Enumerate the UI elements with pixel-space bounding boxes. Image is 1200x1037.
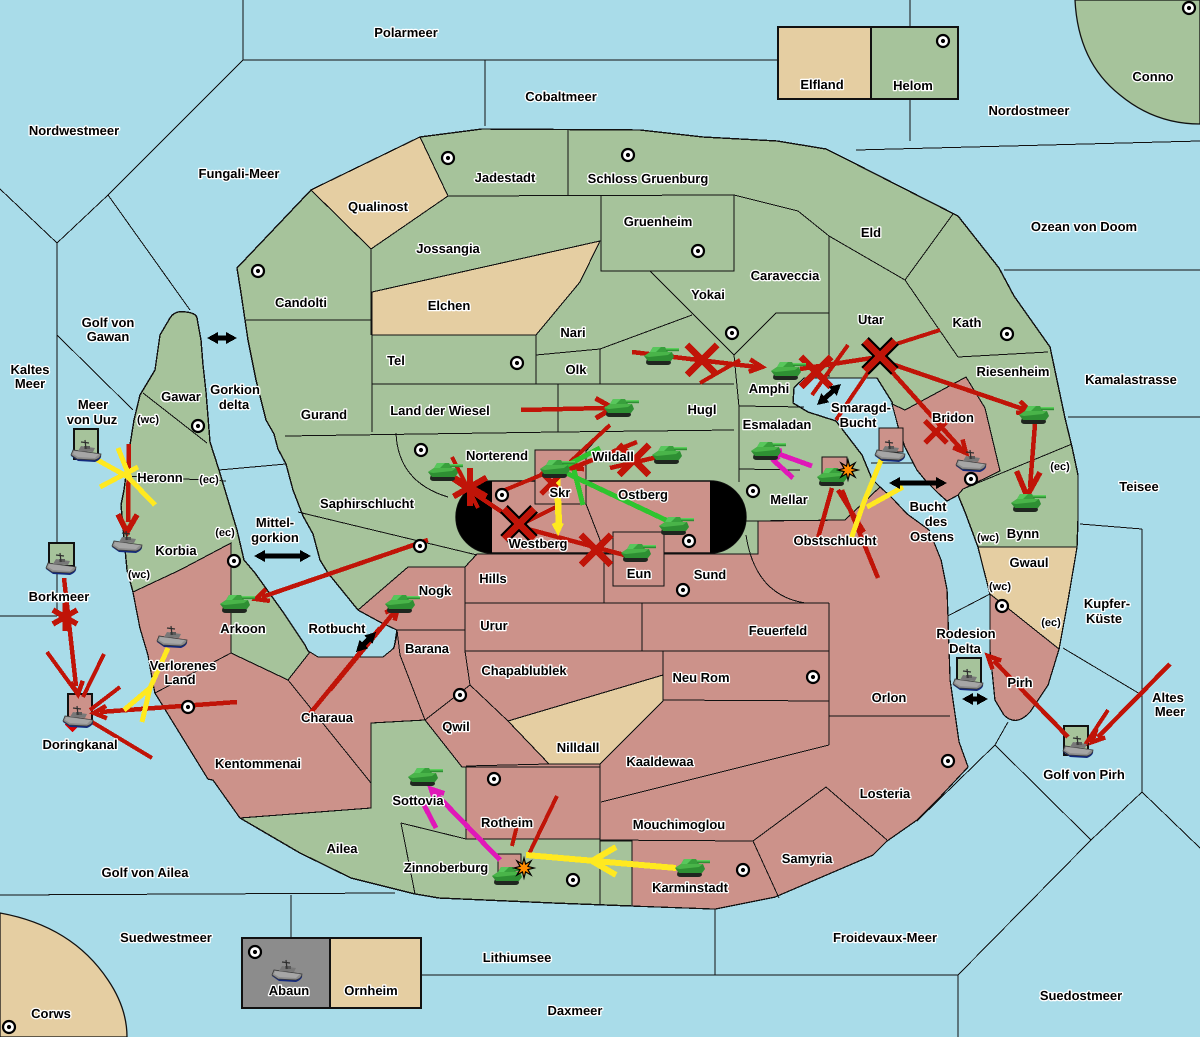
svg-text:Küste: Küste — [1086, 611, 1122, 626]
svg-text:Nilldall: Nilldall — [557, 740, 600, 755]
svg-text:Qualinost: Qualinost — [348, 199, 409, 214]
svg-text:Ailea: Ailea — [326, 841, 358, 856]
svg-text:Orlon: Orlon — [872, 690, 907, 705]
svg-text:Meer: Meer — [1155, 704, 1185, 719]
svg-text:Land: Land — [164, 672, 195, 687]
svg-text:Kupfer-: Kupfer- — [1084, 596, 1130, 611]
svg-text:Meer: Meer — [78, 397, 108, 412]
svg-text:Lithiumsee: Lithiumsee — [483, 950, 552, 965]
svg-text:Borkmeer: Borkmeer — [29, 589, 90, 604]
svg-text:Neu Rom: Neu Rom — [672, 670, 729, 685]
svg-text:Sund: Sund — [694, 567, 727, 582]
svg-text:Sottovia: Sottovia — [392, 793, 444, 808]
svg-text:Mouchimoglou: Mouchimoglou — [633, 817, 725, 832]
svg-text:Pirh: Pirh — [1007, 675, 1032, 690]
svg-text:Olk: Olk — [566, 362, 588, 377]
svg-text:Suedostmeer: Suedostmeer — [1040, 988, 1122, 1003]
svg-text:Zinnoberburg: Zinnoberburg — [404, 860, 489, 875]
svg-text:Gruenheim: Gruenheim — [624, 214, 693, 229]
svg-text:Eun: Eun — [627, 566, 652, 581]
svg-text:Suedwestmeer: Suedwestmeer — [120, 930, 212, 945]
svg-text:von Uuz: von Uuz — [67, 412, 118, 427]
svg-text:Golf von Ailea: Golf von Ailea — [102, 865, 190, 880]
svg-text:Bridon: Bridon — [932, 410, 974, 425]
svg-text:Froidevaux-Meer: Froidevaux-Meer — [833, 930, 937, 945]
svg-text:(ec): (ec) — [1041, 617, 1061, 629]
svg-text:Golf von: Golf von — [82, 315, 135, 330]
svg-text:Smaragd-: Smaragd- — [831, 400, 891, 415]
svg-text:Skr: Skr — [550, 485, 571, 500]
svg-text:Teisee: Teisee — [1119, 479, 1159, 494]
svg-text:Rotheim: Rotheim — [481, 815, 533, 830]
svg-text:Tel: Tel — [387, 353, 405, 368]
svg-text:Corws: Corws — [31, 1006, 71, 1021]
svg-text:Obstschlucht: Obstschlucht — [793, 533, 877, 548]
svg-text:Jadestadt: Jadestadt — [475, 170, 536, 185]
svg-text:Land der Wiesel: Land der Wiesel — [390, 403, 490, 418]
svg-text:(wc): (wc) — [137, 414, 159, 426]
svg-text:Abaun: Abaun — [269, 983, 310, 998]
svg-text:Samyria: Samyria — [782, 851, 833, 866]
svg-text:Gawar: Gawar — [161, 389, 201, 404]
svg-text:(ec): (ec) — [1050, 461, 1070, 473]
svg-text:Elfland: Elfland — [800, 77, 843, 92]
svg-text:Polarmeer: Polarmeer — [374, 25, 438, 40]
svg-text:Rodesion: Rodesion — [936, 626, 995, 641]
svg-text:Saphirschlucht: Saphirschlucht — [320, 496, 415, 511]
svg-text:Golf von Pirh: Golf von Pirh — [1043, 767, 1125, 782]
svg-text:Eld: Eld — [861, 225, 881, 240]
svg-text:Kaltes: Kaltes — [10, 362, 49, 377]
svg-text:Bucht: Bucht — [910, 499, 948, 514]
svg-text:Barana: Barana — [405, 641, 450, 656]
svg-text:(ec): (ec) — [199, 474, 219, 486]
svg-text:Kaaldewaa: Kaaldewaa — [626, 754, 694, 769]
svg-text:Helom: Helom — [893, 78, 933, 93]
svg-text:Mittel-: Mittel- — [256, 515, 294, 530]
svg-text:Yokai: Yokai — [691, 287, 725, 302]
svg-text:Daxmeer: Daxmeer — [548, 1003, 603, 1018]
svg-text:Losteria: Losteria — [860, 786, 911, 801]
svg-text:Ozean von Doom: Ozean von Doom — [1031, 219, 1137, 234]
svg-text:Qwil: Qwil — [442, 719, 469, 734]
svg-text:Gurand: Gurand — [301, 407, 347, 422]
svg-text:Elchen: Elchen — [428, 298, 471, 313]
svg-text:Wildall: Wildall — [592, 449, 634, 464]
svg-text:Bucht: Bucht — [840, 415, 878, 430]
svg-text:Fungali-Meer: Fungali-Meer — [199, 166, 280, 181]
svg-text:Ostens: Ostens — [910, 529, 954, 544]
svg-text:Chapablublek: Chapablublek — [481, 663, 567, 678]
svg-text:Arkoon: Arkoon — [220, 621, 266, 636]
svg-text:Gorkion: Gorkion — [210, 382, 260, 397]
svg-text:Meer: Meer — [15, 376, 45, 391]
svg-text:Feuerfeld: Feuerfeld — [749, 623, 808, 638]
svg-text:Amphi: Amphi — [749, 381, 789, 396]
svg-text:Nordostmeer: Nordostmeer — [989, 103, 1070, 118]
svg-text:Riesenheim: Riesenheim — [977, 364, 1050, 379]
svg-text:Cobaltmeer: Cobaltmeer — [525, 89, 597, 104]
svg-text:(wc): (wc) — [977, 532, 999, 544]
svg-text:Ornheim: Ornheim — [344, 983, 397, 998]
svg-text:Rotbucht: Rotbucht — [308, 621, 366, 636]
svg-text:Kath: Kath — [953, 315, 982, 330]
svg-text:des: des — [925, 514, 947, 529]
svg-text:Jossangia: Jossangia — [416, 241, 480, 256]
svg-text:Nordwestmeer: Nordwestmeer — [29, 123, 119, 138]
svg-text:Korbia: Korbia — [155, 543, 197, 558]
svg-text:Bynn: Bynn — [1007, 526, 1040, 541]
svg-text:Conno: Conno — [1132, 69, 1173, 84]
svg-text:Altes: Altes — [1152, 690, 1184, 705]
svg-text:Nari: Nari — [560, 325, 585, 340]
svg-text:Nogk: Nogk — [419, 583, 452, 598]
svg-text:Charaua: Charaua — [301, 710, 354, 725]
svg-text:Kamalastrasse: Kamalastrasse — [1085, 372, 1177, 387]
svg-text:Candolti: Candolti — [275, 295, 327, 310]
svg-text:Hugl: Hugl — [688, 402, 717, 417]
svg-text:Doringkanal: Doringkanal — [42, 737, 117, 752]
svg-text:Mellar: Mellar — [770, 492, 808, 507]
svg-text:Esmaladan: Esmaladan — [743, 417, 812, 432]
svg-text:Kentommenai: Kentommenai — [215, 756, 301, 771]
svg-text:Karminstadt: Karminstadt — [652, 880, 729, 895]
svg-text:Hills: Hills — [479, 571, 506, 586]
svg-text:delta: delta — [219, 397, 250, 412]
svg-text:Norterend: Norterend — [466, 448, 528, 463]
svg-text:Gawan: Gawan — [87, 329, 130, 344]
svg-text:Urur: Urur — [480, 618, 507, 633]
svg-text:Utar: Utar — [858, 312, 884, 327]
svg-text:Delta: Delta — [949, 641, 982, 656]
svg-text:Ostberg: Ostberg — [618, 487, 668, 502]
svg-text:gorkion: gorkion — [251, 530, 299, 545]
svg-text:Schloss Gruenburg: Schloss Gruenburg — [588, 171, 709, 186]
svg-text:(ec): (ec) — [215, 527, 235, 539]
svg-text:(wc): (wc) — [989, 581, 1011, 593]
svg-text:Heronn: Heronn — [137, 470, 183, 485]
svg-text:Caraveccia: Caraveccia — [751, 268, 820, 283]
svg-text:Gwaul: Gwaul — [1009, 555, 1048, 570]
svg-text:Westberg: Westberg — [509, 536, 568, 551]
svg-text:Verlorenes: Verlorenes — [150, 658, 217, 673]
svg-text:(wc): (wc) — [128, 569, 150, 581]
